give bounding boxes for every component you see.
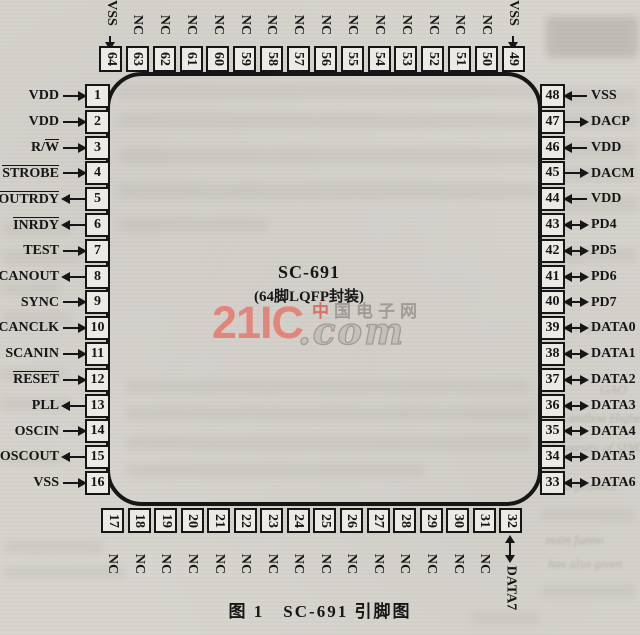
pin-box-37: 37	[540, 368, 565, 392]
pin-label: PD5	[591, 243, 617, 258]
pin-label: VDD	[591, 140, 621, 155]
pin-row: SYNC9	[21, 290, 110, 314]
chip-name: SC-691	[80, 262, 538, 283]
ghost-text: has also given	[548, 556, 622, 572]
arrow-out-icon	[63, 224, 85, 226]
pin-label: NC	[475, 6, 498, 44]
pin-box-25: 25	[313, 508, 336, 533]
pin-label: SCANOUT	[0, 269, 59, 284]
pin-row: VDD2	[29, 110, 110, 134]
arrow-bidir-icon	[565, 327, 587, 329]
pin-label: NC	[367, 544, 390, 584]
pin-box-11: 11	[85, 342, 110, 366]
pin-label: NC	[421, 6, 444, 44]
pin-box-61: 61	[180, 46, 203, 72]
pin-box-33: 33	[540, 471, 565, 495]
arrow-in-icon	[565, 95, 587, 97]
pin-box-42: 42	[540, 239, 565, 263]
pin-column: NC54	[368, 0, 391, 74]
arrow-bidir-icon	[565, 301, 587, 303]
pin-box-55: 55	[341, 46, 364, 72]
arrow-out-icon	[63, 405, 85, 407]
pin-box-48: 48	[540, 84, 565, 108]
pin-row: SCANCLK10	[0, 316, 110, 340]
pin-label: VDD	[29, 114, 59, 129]
pin-box-16: 16	[85, 471, 110, 495]
pin-box-50: 50	[475, 46, 498, 72]
pin-row: 38DATA1	[540, 342, 636, 366]
pin-box-19: 19	[154, 508, 177, 533]
pin-box-12: 12	[85, 368, 110, 392]
pin-box-3: 3	[85, 136, 110, 160]
pin-label: VDD	[591, 191, 621, 206]
ghost-smudge	[546, 16, 638, 58]
arrow-bidir-icon	[565, 482, 587, 484]
pin-label: OSCOUT	[0, 449, 59, 464]
pin-box-8: 8	[85, 265, 110, 289]
arrow-out-icon	[63, 456, 85, 458]
pin-column: NC53	[394, 0, 417, 74]
pin-row: PLL13	[32, 394, 110, 418]
pin-label: NC	[260, 544, 283, 584]
pin-row: OSCOUT15	[0, 445, 110, 469]
pin-label: DATA3	[591, 398, 636, 413]
pin-column: NC58	[260, 0, 283, 74]
arrow-out-icon	[565, 172, 587, 174]
pin-column: NC60	[206, 0, 229, 74]
pin-row: 39DATA0	[540, 316, 636, 340]
pin-label: R/W	[31, 139, 59, 156]
pin-label: DATA5	[591, 449, 636, 464]
pin-label: TEST	[23, 243, 59, 258]
pin-row: VSS16	[33, 471, 110, 495]
pin-label: INRDY	[13, 217, 59, 234]
pin-row: SCANIN11	[5, 342, 110, 366]
pin-box-43: 43	[540, 213, 565, 237]
ghost-smudge	[540, 508, 636, 521]
pin-label: VSS	[33, 475, 59, 490]
pin-box-30: 30	[446, 508, 469, 533]
pin-box-64: 64	[99, 46, 122, 72]
pin-row: INRDY6	[13, 213, 110, 237]
pin-label: PD7	[591, 295, 617, 310]
pin-column: NC55	[341, 0, 364, 74]
pin-box-26: 26	[340, 508, 363, 533]
pin-label: PD4	[591, 217, 617, 232]
pin-box-57: 57	[287, 46, 310, 72]
pin-label: NC	[128, 544, 151, 584]
arrow-in-icon	[63, 121, 85, 123]
pin-label: NC	[233, 6, 256, 44]
pin-label: DATA0	[591, 320, 636, 335]
pin-column: VSS49	[502, 0, 525, 74]
pin-label: SYNC	[21, 295, 59, 310]
pin-label: DATA6	[591, 475, 636, 490]
scanned-page: Drivers forGAOof Lanzhou Higher Polytech…	[0, 0, 640, 635]
arrow-bidir-icon	[565, 224, 587, 226]
pin-row: 48VSS	[540, 84, 617, 108]
pin-box-44: 44	[540, 187, 565, 211]
arrow-in-icon	[63, 353, 85, 355]
pin-label: NC	[287, 544, 310, 584]
pin-box-34: 34	[540, 445, 565, 469]
pin-label: NC	[260, 6, 283, 44]
pin-box-59: 59	[233, 46, 256, 72]
arrow-bidir-icon	[565, 456, 587, 458]
pin-box-32: 32	[499, 508, 522, 533]
pin-box-4: 4	[85, 161, 110, 185]
pin-row: STROBE4	[2, 161, 110, 185]
pin-label: RESET	[13, 371, 59, 388]
pin-label: NC	[340, 544, 363, 584]
pin-row: 40PD7	[540, 290, 617, 314]
pin-box-53: 53	[394, 46, 417, 72]
pin-row: SCANOUT8	[0, 265, 110, 289]
arrow-in-icon	[512, 36, 514, 44]
pin-column: NC63	[126, 0, 149, 74]
pin-label: NC	[181, 544, 204, 584]
pin-label: NC	[154, 544, 177, 584]
pin-box-24: 24	[287, 508, 310, 533]
pin-label: STROBE	[2, 165, 59, 182]
arrow-in-icon	[63, 327, 85, 329]
pin-row: 37DATA2	[540, 368, 636, 392]
ghost-text: main funno	[545, 532, 604, 548]
pin-label: NC	[180, 6, 203, 44]
pin-column: NC50	[475, 0, 498, 74]
pin-box-18: 18	[128, 508, 151, 533]
pin-label: PLL	[32, 398, 59, 413]
pin-box-49: 49	[502, 46, 525, 72]
chip-body: SC-691 (64脚LQFP封装)	[106, 72, 542, 506]
pin-row: 45DACM	[540, 161, 635, 185]
arrow-bidir-icon	[509, 542, 511, 556]
pin-label: NC	[207, 544, 230, 584]
arrow-in-icon	[109, 36, 111, 44]
pin-column: VSS64	[99, 0, 122, 74]
pin-label: NC	[393, 544, 416, 584]
pin-box-7: 7	[85, 239, 110, 263]
arrow-bidir-icon	[565, 353, 587, 355]
arrow-in-icon	[63, 430, 85, 432]
pin-label: VSS	[99, 0, 122, 30]
arrow-in-icon	[63, 172, 85, 174]
pin-row: 34DATA5	[540, 445, 636, 469]
figure-caption: 图 1 SC-691 引脚图	[0, 597, 640, 622]
pin-label: NC	[341, 6, 364, 44]
pin-box-22: 22	[234, 508, 257, 533]
pin-row: VDD1	[29, 84, 110, 108]
arrow-in-icon	[63, 95, 85, 97]
pin-box-23: 23	[260, 508, 283, 533]
pin-label: VSS	[502, 0, 525, 30]
pin-label: OSCIN	[15, 424, 59, 439]
pin-column: NC51	[448, 0, 471, 74]
pin-box-56: 56	[314, 46, 337, 72]
pin-box-62: 62	[153, 46, 176, 72]
pin-column: NC59	[233, 0, 256, 74]
pin-label: SCANIN	[5, 346, 59, 361]
pin-label: NC	[314, 6, 337, 44]
pin-box-45: 45	[540, 161, 565, 185]
pin-label: SCANCLK	[0, 320, 59, 335]
pin-box-10: 10	[85, 316, 110, 340]
pin-box-39: 39	[540, 316, 565, 340]
pin-row: 47DACP	[540, 110, 630, 134]
pin-column: NC61	[180, 0, 203, 74]
pin-column: NC52	[421, 0, 444, 74]
pin-box-21: 21	[207, 508, 230, 533]
pin-box-17: 17	[101, 508, 124, 533]
pin-row: 44VDD	[540, 187, 621, 211]
pin-label: DACM	[591, 166, 635, 181]
ghost-smudge	[4, 540, 104, 554]
pin-label: NC	[101, 544, 124, 584]
pin-row: TEST7	[23, 239, 110, 263]
package-label: (64脚LQFP封装)	[80, 285, 538, 306]
pin-box-36: 36	[540, 394, 565, 418]
pin-label: PD6	[591, 269, 617, 284]
pin-label: NC	[446, 544, 469, 584]
chip-title: SC-691 (64脚LQFP封装)	[80, 262, 538, 306]
pin-box-46: 46	[540, 136, 565, 160]
pin-row: 41PD6	[540, 265, 617, 289]
arrow-in-icon	[565, 147, 587, 149]
arrow-in-icon	[63, 301, 85, 303]
pin-box-6: 6	[85, 213, 110, 237]
pin-label: DATA4	[591, 424, 636, 439]
pin-label: NC	[368, 6, 391, 44]
arrow-bidir-icon	[565, 379, 587, 381]
pin-box-47: 47	[540, 110, 565, 134]
pin-box-60: 60	[206, 46, 229, 72]
pin-box-9: 9	[85, 290, 110, 314]
arrow-in-icon	[63, 482, 85, 484]
pin-box-27: 27	[367, 508, 390, 533]
pin-box-31: 31	[473, 508, 496, 533]
pin-box-1: 1	[85, 84, 110, 108]
pin-row: 43PD4	[540, 213, 617, 237]
pin-box-28: 28	[393, 508, 416, 533]
arrow-in-icon	[63, 250, 85, 252]
arrow-bidir-icon	[565, 405, 587, 407]
pin-row: 36DATA3	[540, 394, 636, 418]
pin-label: NC	[126, 6, 149, 44]
pin-box-40: 40	[540, 290, 565, 314]
pin-box-35: 35	[540, 419, 565, 443]
pin-row: OSCIN14	[15, 419, 110, 443]
pin-box-2: 2	[85, 110, 110, 134]
pin-box-38: 38	[540, 342, 565, 366]
pin-row: 46VDD	[540, 136, 621, 160]
pin-label: DATA1	[591, 346, 636, 361]
pin-label: VDD	[29, 88, 59, 103]
arrow-in-icon	[565, 198, 587, 200]
pin-column: NC57	[287, 0, 310, 74]
pin-row: R/W3	[31, 136, 110, 160]
pin-column: NC62	[153, 0, 176, 74]
pin-row: 33DATA6	[540, 471, 636, 495]
pin-box-63: 63	[126, 46, 149, 72]
pin-label: VSS	[591, 88, 617, 103]
pin-label: NC	[206, 6, 229, 44]
pin-box-13: 13	[85, 394, 110, 418]
pin-box-52: 52	[421, 46, 444, 72]
pin-box-29: 29	[420, 508, 443, 533]
pin-label: NC	[394, 6, 417, 44]
pin-label: NC	[420, 544, 443, 584]
pin-row: OUTRDY5	[0, 187, 110, 211]
arrow-out-icon	[63, 198, 85, 200]
pin-label: NC	[313, 544, 336, 584]
arrow-out-icon	[565, 121, 587, 123]
pin-row: 35DATA4	[540, 419, 636, 443]
pin-row: RESET12	[13, 368, 110, 392]
pin-label: NC	[287, 6, 310, 44]
pin-box-51: 51	[448, 46, 471, 72]
pin-column: NC56	[314, 0, 337, 74]
arrow-bidir-icon	[565, 276, 587, 278]
pin-row: 42PD5	[540, 239, 617, 263]
pin-label: OUTRDY	[0, 191, 59, 208]
arrow-out-icon	[63, 276, 85, 278]
pin-label: DACP	[591, 114, 630, 129]
pin-box-41: 41	[540, 265, 565, 289]
arrow-bidir-icon	[565, 250, 587, 252]
arrow-bidir-icon	[565, 430, 587, 432]
pin-box-20: 20	[181, 508, 204, 533]
pin-label: NC	[473, 544, 496, 584]
pin-label: NC	[153, 6, 176, 44]
arrow-in-icon	[63, 379, 85, 381]
pin-box-5: 5	[85, 187, 110, 211]
pin-box-54: 54	[368, 46, 391, 72]
pin-box-58: 58	[260, 46, 283, 72]
pin-label: NC	[448, 6, 471, 44]
pin-box-15: 15	[85, 445, 110, 469]
arrow-in-icon	[63, 147, 85, 149]
pin-label: NC	[234, 544, 257, 584]
pin-label: DATA2	[591, 372, 636, 387]
pin-box-14: 14	[85, 419, 110, 443]
